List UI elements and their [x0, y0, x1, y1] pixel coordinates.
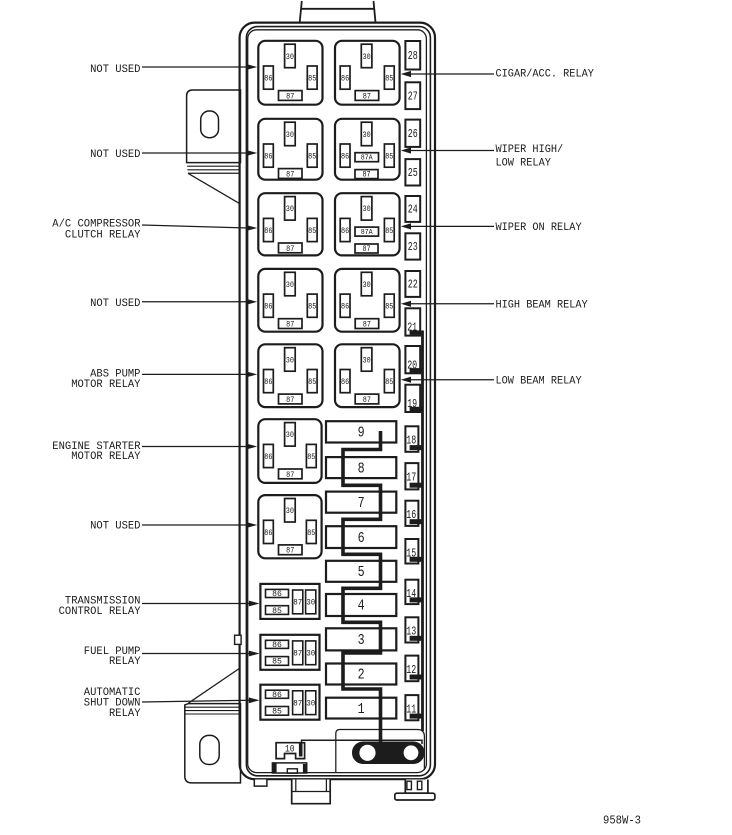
svg-text:30: 30 — [306, 700, 315, 709]
svg-text:87: 87 — [286, 245, 294, 254]
svg-text:87: 87 — [286, 92, 294, 101]
svg-text:87: 87 — [286, 471, 294, 480]
svg-text:87A: 87A — [361, 155, 374, 163]
svg-text:87: 87 — [363, 246, 371, 254]
svg-text:85: 85 — [272, 708, 282, 717]
svg-text:28: 28 — [408, 49, 418, 63]
svg-text:NOT USED: NOT USED — [90, 149, 141, 161]
svg-text:85: 85 — [308, 75, 316, 84]
svg-text:23: 23 — [408, 240, 418, 254]
svg-text:NOT USED: NOT USED — [90, 64, 141, 76]
svg-text:9: 9 — [358, 426, 365, 442]
svg-text:10: 10 — [285, 744, 295, 755]
svg-text:86: 86 — [272, 641, 282, 650]
svg-text:1: 1 — [358, 702, 365, 718]
svg-text:LOW BEAM RELAY: LOW BEAM RELAY — [496, 376, 582, 388]
svg-text:CIGAR/ACC. RELAY: CIGAR/ACC. RELAY — [496, 69, 595, 81]
svg-text:25: 25 — [408, 166, 418, 180]
svg-text:86: 86 — [264, 529, 272, 538]
svg-text:30: 30 — [363, 131, 371, 140]
svg-text:87: 87 — [293, 650, 302, 659]
svg-text:87: 87 — [286, 321, 294, 330]
svg-text:86: 86 — [272, 590, 282, 599]
svg-text:87: 87 — [286, 396, 294, 405]
svg-text:86: 86 — [264, 227, 272, 236]
svg-text:30: 30 — [363, 356, 371, 365]
svg-text:MOTOR RELAY: MOTOR RELAY — [71, 451, 141, 463]
svg-text:4: 4 — [358, 599, 365, 615]
svg-text:86: 86 — [341, 227, 349, 236]
svg-text:NOT USED: NOT USED — [90, 298, 141, 310]
svg-text:22: 22 — [408, 278, 418, 292]
svg-text:85: 85 — [385, 153, 393, 162]
svg-text:85: 85 — [307, 453, 315, 462]
svg-text:24: 24 — [408, 203, 418, 217]
svg-text:17: 17 — [406, 471, 416, 485]
svg-text:85: 85 — [308, 303, 316, 312]
svg-text:30: 30 — [286, 205, 294, 214]
svg-text:30: 30 — [306, 650, 315, 659]
svg-text:87: 87 — [286, 547, 294, 556]
svg-text:HIGH BEAM RELAY: HIGH BEAM RELAY — [496, 299, 588, 311]
svg-text:WIPER HIGH/: WIPER HIGH/ — [496, 144, 564, 156]
svg-text:8: 8 — [358, 461, 365, 477]
svg-text:CLUTCH RELAY: CLUTCH RELAY — [65, 229, 141, 241]
svg-text:30: 30 — [306, 599, 315, 608]
svg-text:85: 85 — [385, 75, 393, 84]
svg-text:3: 3 — [358, 633, 365, 649]
svg-text:85: 85 — [385, 378, 393, 387]
svg-text:86: 86 — [341, 303, 349, 312]
svg-text:WIPER ON RELAY: WIPER ON RELAY — [496, 222, 582, 234]
svg-text:85: 85 — [308, 378, 316, 387]
svg-text:85: 85 — [307, 529, 315, 538]
svg-text:RELAY: RELAY — [109, 656, 141, 668]
svg-text:85: 85 — [272, 658, 282, 667]
svg-text:87: 87 — [286, 170, 294, 179]
svg-text:6: 6 — [358, 531, 365, 547]
svg-text:7: 7 — [358, 496, 365, 512]
svg-text:86: 86 — [264, 153, 272, 162]
svg-text:27: 27 — [408, 89, 418, 103]
svg-text:86: 86 — [264, 303, 272, 312]
svg-text:87: 87 — [363, 172, 371, 180]
svg-text:30: 30 — [286, 356, 294, 365]
svg-text:87: 87 — [363, 396, 371, 405]
svg-text:LOW RELAY: LOW RELAY — [496, 158, 552, 170]
svg-text:86: 86 — [264, 453, 272, 462]
svg-text:85: 85 — [308, 153, 316, 162]
svg-text:30: 30 — [286, 507, 294, 516]
svg-text:85: 85 — [385, 227, 393, 236]
svg-text:5: 5 — [358, 565, 365, 581]
svg-text:RELAY: RELAY — [109, 708, 141, 720]
svg-text:86: 86 — [264, 75, 272, 84]
svg-text:CONTROL RELAY: CONTROL RELAY — [59, 606, 141, 618]
svg-text:30: 30 — [363, 53, 371, 62]
svg-text:30: 30 — [286, 53, 294, 62]
svg-text:85: 85 — [272, 607, 282, 616]
svg-text:30: 30 — [286, 131, 294, 140]
svg-text:87: 87 — [293, 599, 302, 608]
svg-text:86: 86 — [272, 691, 282, 700]
svg-text:86: 86 — [264, 378, 272, 387]
svg-text:87: 87 — [293, 700, 302, 709]
svg-text:MOTOR RELAY: MOTOR RELAY — [71, 379, 141, 391]
svg-text:85: 85 — [308, 227, 316, 236]
svg-text:87A: 87A — [361, 229, 374, 237]
svg-text:85: 85 — [385, 303, 393, 312]
svg-text:30: 30 — [286, 281, 294, 290]
svg-text:86: 86 — [341, 378, 349, 387]
svg-text:26: 26 — [408, 127, 418, 141]
svg-text:86: 86 — [341, 75, 349, 84]
svg-text:NOT USED: NOT USED — [90, 521, 141, 533]
svg-text:87: 87 — [363, 92, 371, 101]
svg-text:30: 30 — [363, 205, 371, 214]
svg-text:87: 87 — [363, 321, 371, 330]
svg-text:86: 86 — [341, 153, 349, 162]
svg-text:30: 30 — [286, 431, 294, 440]
svg-text:2: 2 — [358, 668, 365, 684]
svg-text:958W-3: 958W-3 — [603, 814, 641, 828]
svg-text:30: 30 — [363, 281, 371, 290]
